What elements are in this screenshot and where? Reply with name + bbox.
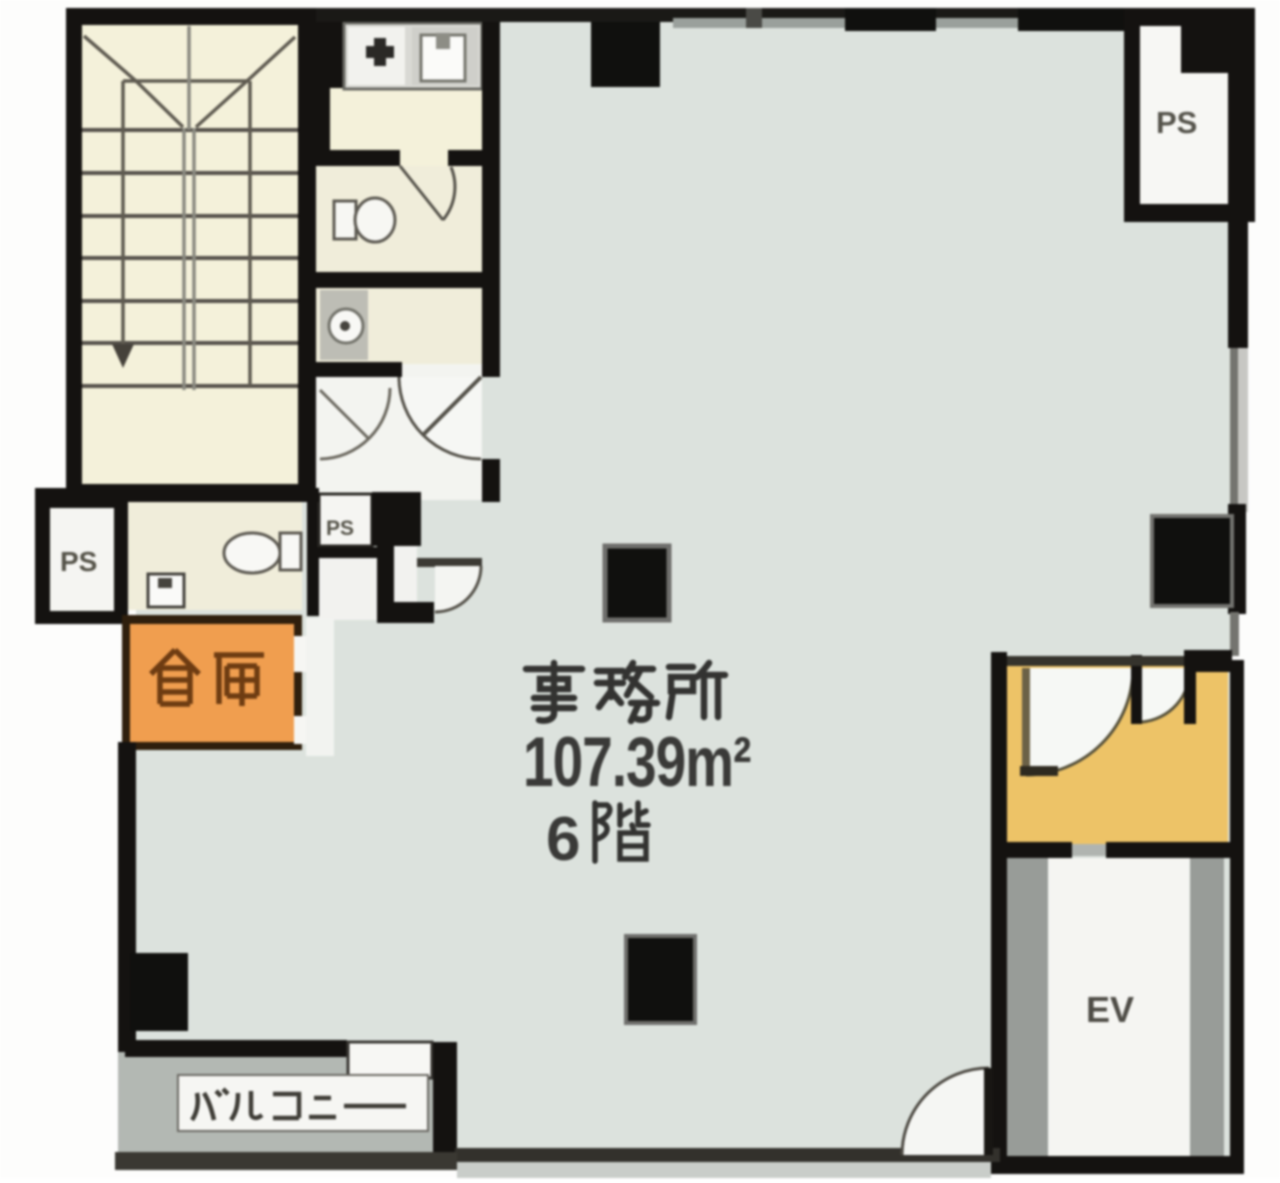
svg-text:PS: PS [326,517,354,540]
svg-text:PS: PS [60,546,97,577]
svg-text:PS: PS [1156,105,1197,140]
svg-text:107.39m²: 107.39m² [523,724,750,802]
svg-text:6: 6 [546,805,580,874]
svg-text:EV: EV [1086,989,1134,1030]
